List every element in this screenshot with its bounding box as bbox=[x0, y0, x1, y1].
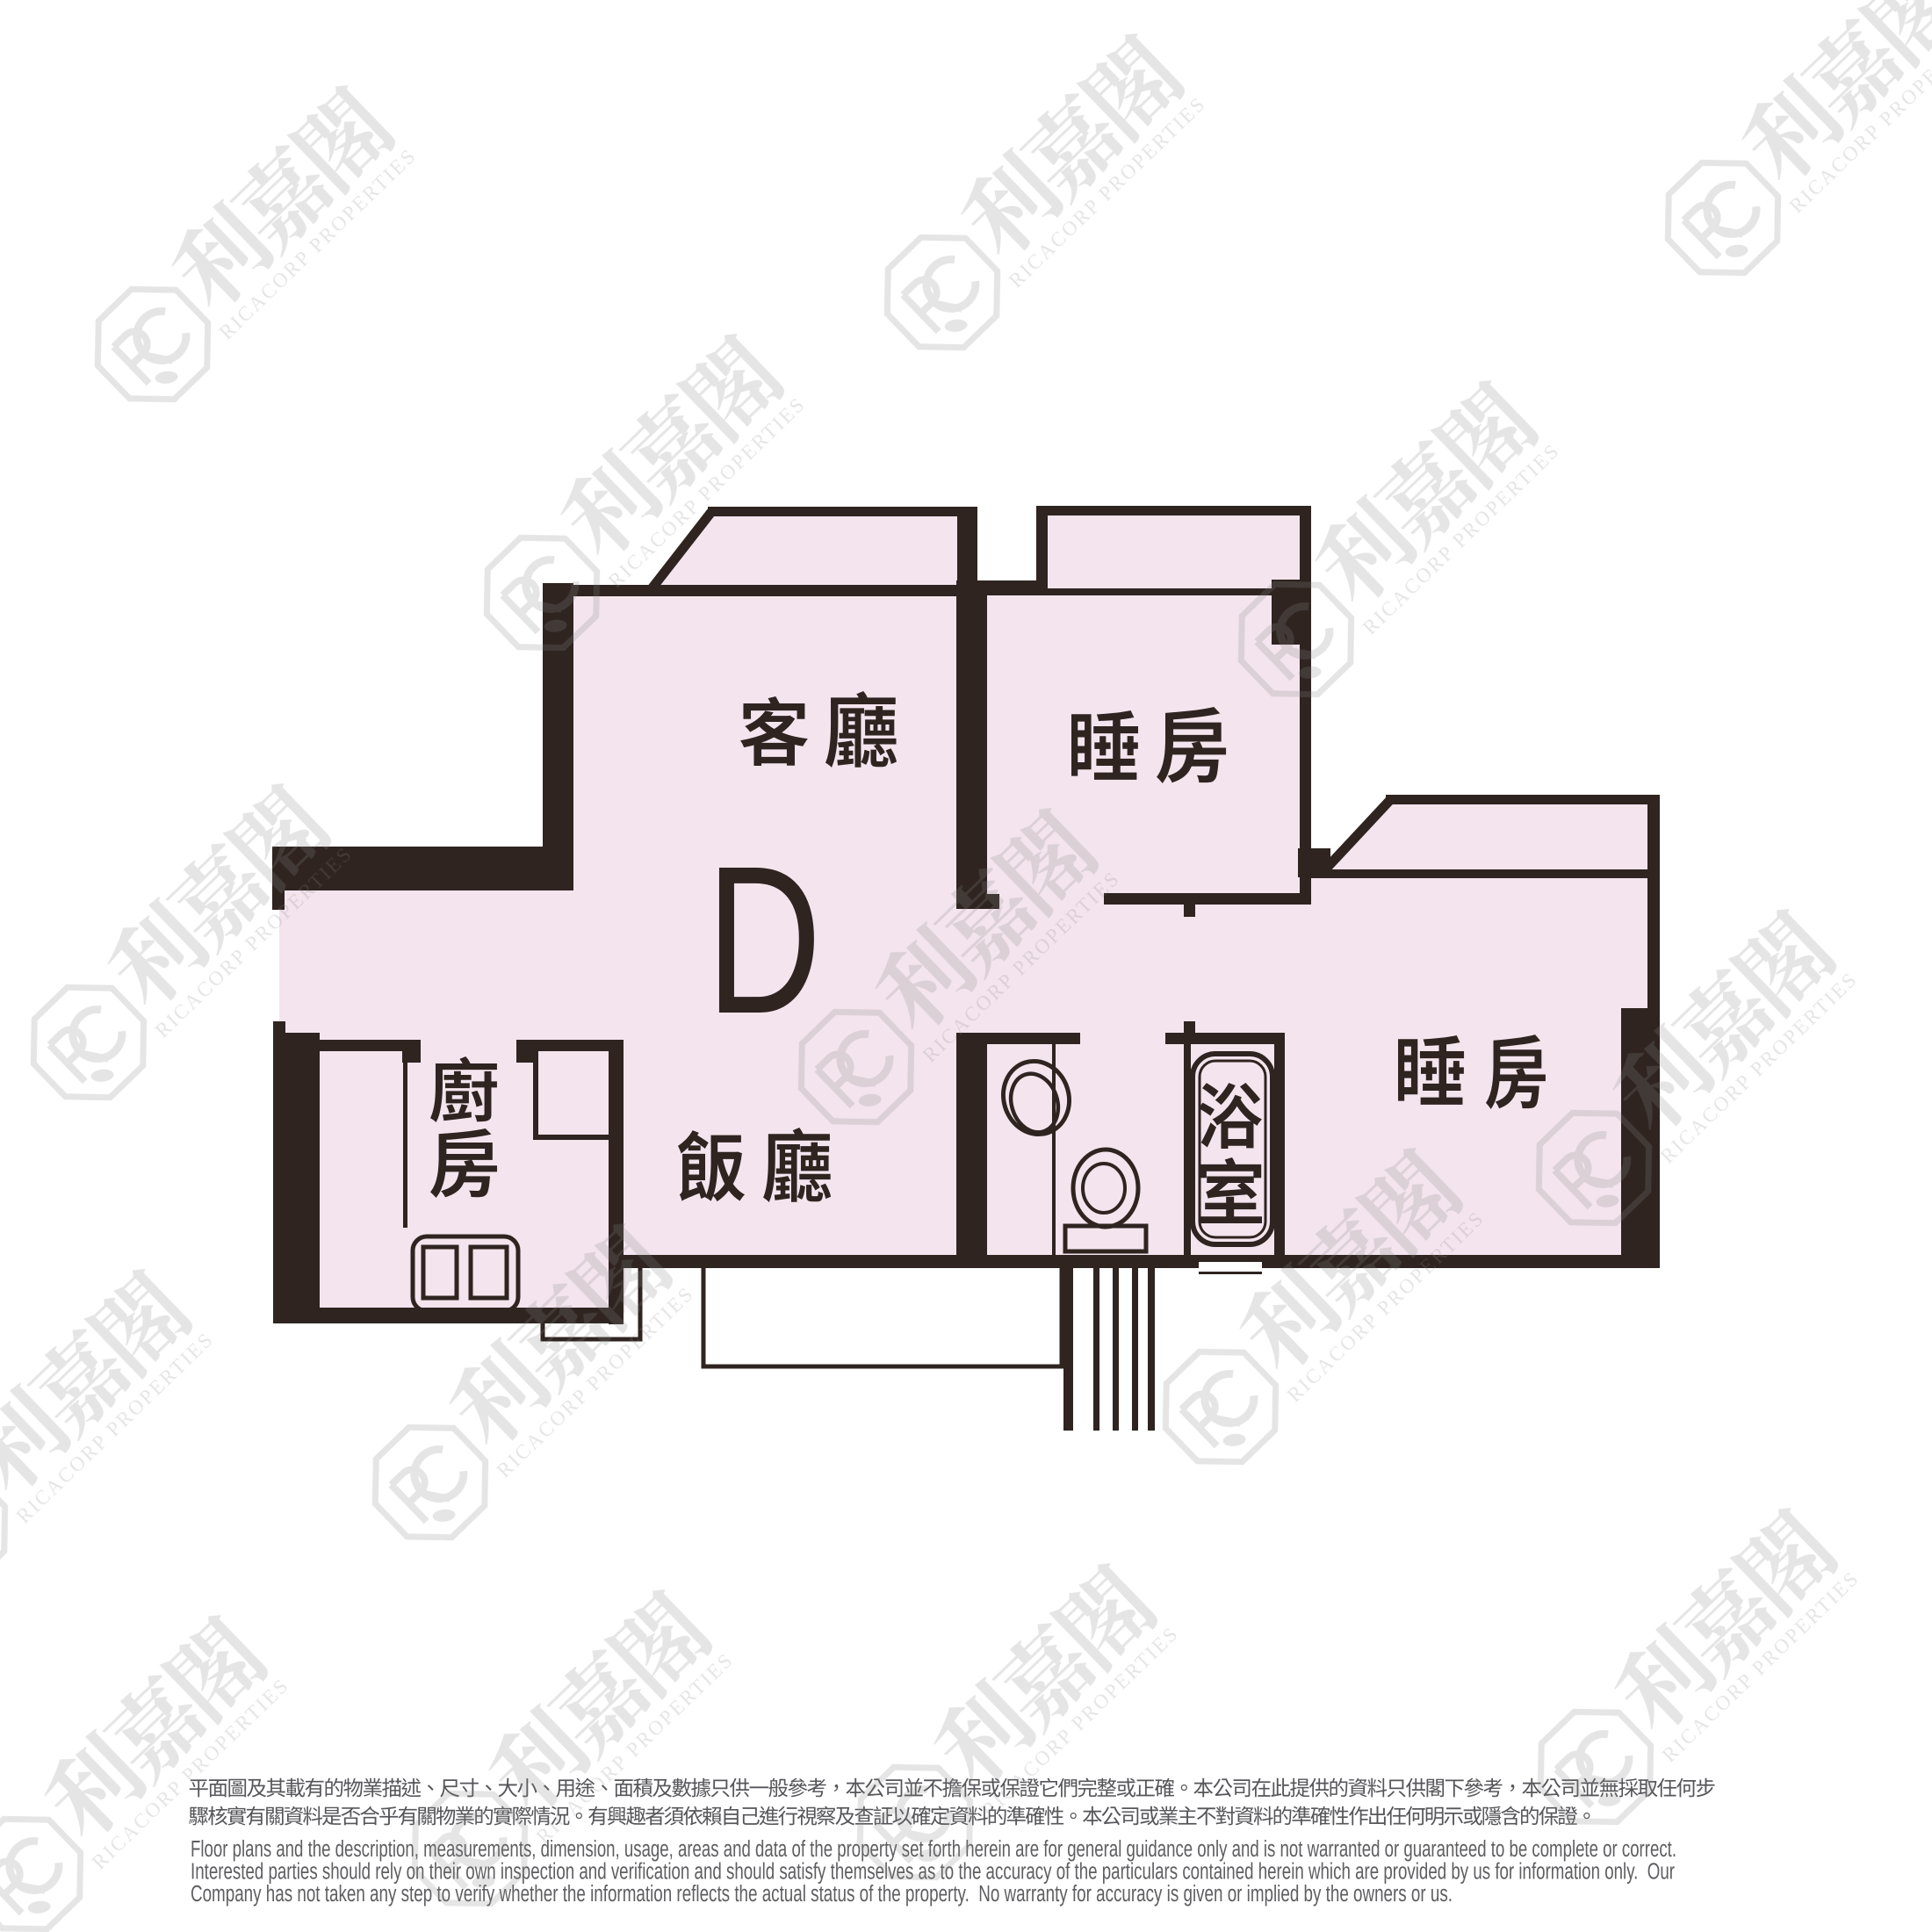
svg-text:RICACORP PROPERTIES: RICACORP PROPERTIES bbox=[1658, 1567, 1864, 1766]
svg-text:RICACORP PROPERTIES: RICACORP PROPERTIES bbox=[1656, 968, 1862, 1167]
svg-text:RICACORP PROPERTIES: RICACORP PROPERTIES bbox=[977, 1622, 1183, 1821]
svg-text:RICACORP PROPERTIES: RICACORP PROPERTIES bbox=[215, 144, 421, 343]
svg-text:RICACORP PROPERTIES: RICACORP PROPERTIES bbox=[1359, 439, 1564, 638]
svg-text:RICACORP PROPERTIES: RICACORP PROPERTIES bbox=[1005, 92, 1210, 292]
svg-text:RICACORP PROPERTIES: RICACORP PROPERTIES bbox=[12, 1328, 218, 1527]
svg-text:Company has not taken any step: Company has not taken any step to verify… bbox=[191, 1882, 1453, 1907]
